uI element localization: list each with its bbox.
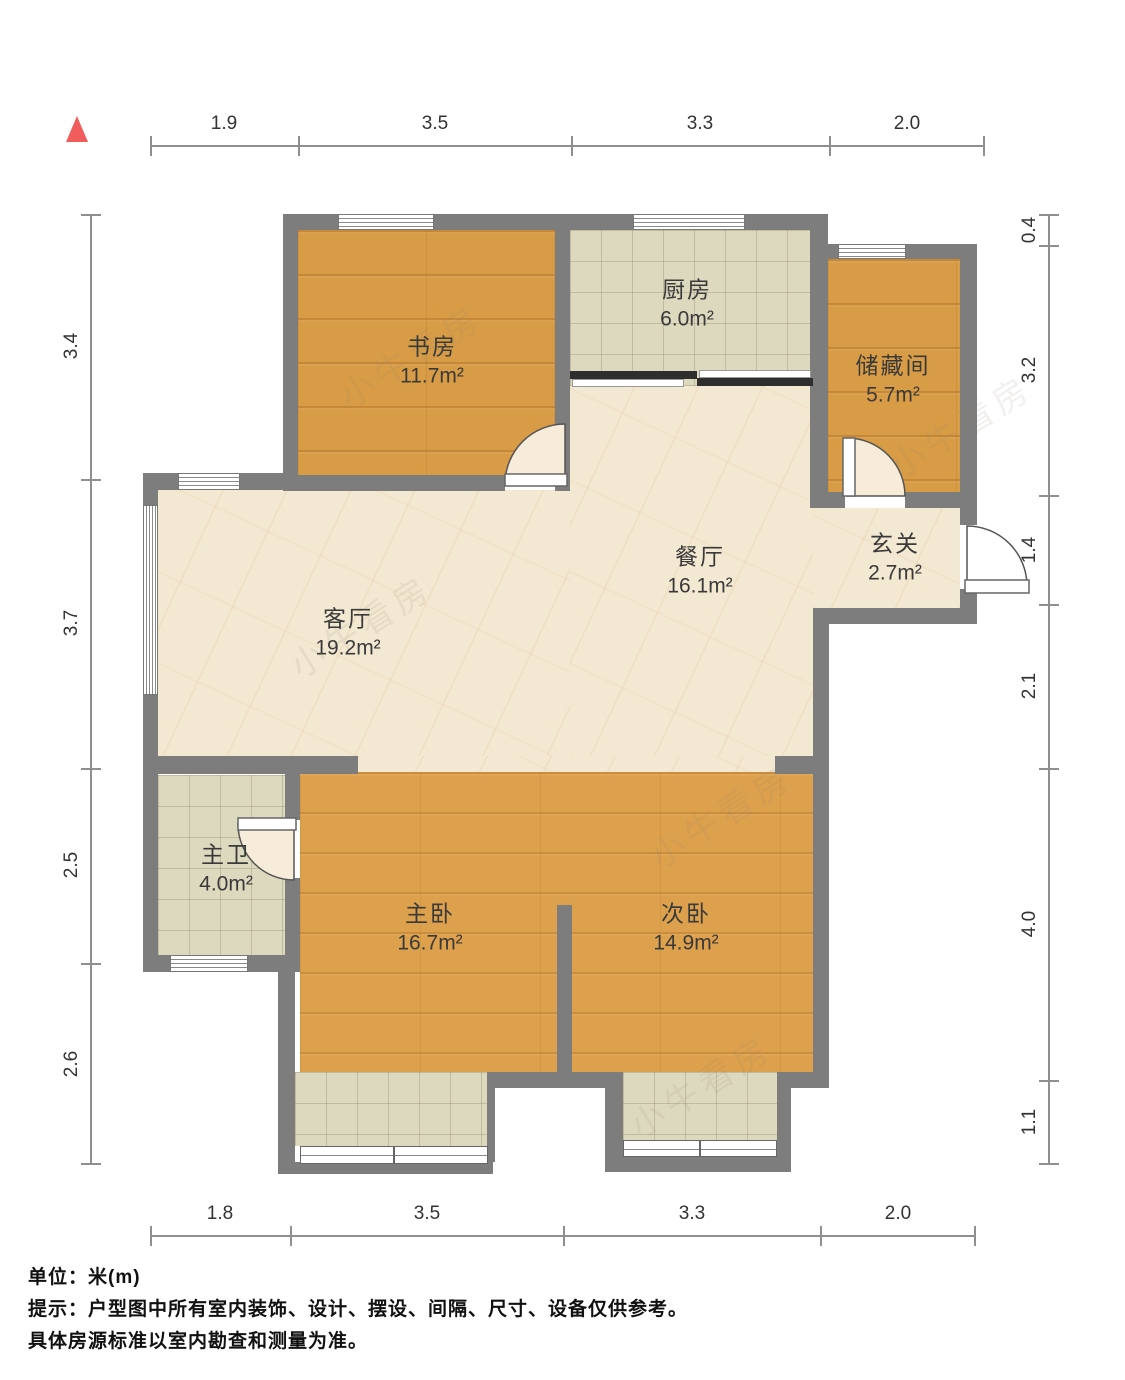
disclaimer-line1: 提示：户型图中所有室内装饰、设计、摆设、间隔、尺寸、设备仅供参考。 — [28, 1294, 688, 1321]
room-label-second-bed: 次卧 14.9m² — [653, 895, 718, 956]
wall — [775, 756, 829, 774]
entry-door-arc — [967, 526, 1027, 586]
dim-label: 2.6 — [61, 1051, 83, 1077]
wall — [285, 756, 300, 820]
dim-label: 1.8 — [207, 1203, 233, 1225]
bathroom-window — [170, 955, 248, 972]
disclaimer-line2: 具体房源标准以室内勘查和测量为准。 — [28, 1326, 368, 1353]
dim-tick — [820, 1226, 822, 1246]
dim-label: 3.3 — [687, 113, 713, 135]
room-area: 4.0m² — [199, 873, 253, 897]
kitchen-sliding-door — [697, 378, 813, 386]
room-area: 2.7m² — [868, 562, 922, 586]
room-area: 16.7m² — [397, 932, 462, 956]
dim-line-right — [1048, 214, 1050, 1165]
dim-tick — [81, 1163, 101, 1165]
room-label-kitchen: 厨房 6.0m² — [660, 271, 714, 332]
dim-tick — [290, 1226, 292, 1246]
dim-label: 4.0 — [1019, 911, 1041, 937]
dim-label: 1.4 — [1019, 537, 1041, 563]
second-bay-window — [623, 1140, 777, 1157]
dim-tick — [974, 1226, 976, 1246]
wall — [283, 475, 505, 491]
dim-tick — [81, 963, 101, 965]
dim-line-left — [90, 214, 92, 1165]
wall — [555, 214, 570, 491]
dim-tick — [1039, 214, 1059, 216]
dim-label: 3.5 — [414, 1203, 440, 1225]
dim-label: 3.7 — [61, 610, 83, 636]
dim-label: 2.1 — [1019, 673, 1041, 699]
dim-label: 2.0 — [894, 113, 920, 135]
unit-note: 单位：米(m) — [28, 1262, 141, 1289]
room-name: 主卫 — [199, 836, 253, 870]
storage-window — [838, 244, 906, 259]
dim-tick — [1039, 495, 1059, 497]
dim-tick — [1039, 604, 1059, 606]
room-label-master-bed: 主卧 16.7m² — [397, 895, 462, 956]
wall — [777, 1072, 791, 1171]
kitchen-window — [633, 214, 745, 230]
dim-tick — [1039, 1163, 1059, 1165]
kitchen-sliding-door-track — [572, 379, 684, 387]
room-area: 5.7m² — [856, 384, 931, 408]
dim-label: 2.5 — [61, 852, 83, 878]
second-bay-floor — [623, 1072, 777, 1140]
wall — [813, 608, 829, 1075]
room-name: 次卧 — [653, 895, 718, 929]
master-bay-window — [300, 1146, 488, 1164]
living-side-window — [143, 505, 158, 695]
wall — [143, 756, 358, 774]
dim-label: 3.2 — [1019, 357, 1041, 383]
room-name: 客厅 — [315, 600, 380, 634]
dim-tick — [829, 136, 831, 156]
dim-label: 1.9 — [211, 113, 237, 135]
dim-tick — [563, 1226, 565, 1246]
room-area: 11.7m² — [400, 365, 464, 389]
dim-tick — [81, 768, 101, 770]
dim-tick — [298, 136, 300, 156]
living-top-window — [178, 473, 240, 490]
wall — [828, 492, 845, 508]
wall — [565, 475, 570, 491]
dim-tick — [571, 136, 573, 156]
wall — [557, 905, 572, 1072]
dim-label: 1.1 — [1019, 1109, 1041, 1135]
north-arrow-icon — [66, 116, 88, 142]
room-label-entry: 玄关 2.7m² — [868, 525, 922, 586]
room-name: 主卧 — [397, 895, 462, 929]
dim-tick — [1039, 1080, 1059, 1082]
dim-tick — [81, 479, 101, 481]
room-name: 书房 — [400, 328, 464, 362]
room-label-storage: 储藏间 5.7m² — [856, 347, 931, 408]
master-bay-floor — [295, 1072, 487, 1146]
room-label-dining: 餐厅 16.1m² — [667, 538, 732, 599]
wall — [487, 1072, 607, 1088]
room-area: 19.2m² — [315, 637, 380, 661]
room-name: 玄关 — [868, 525, 922, 559]
dim-label: 3.4 — [61, 333, 83, 359]
room-name: 餐厅 — [667, 538, 732, 572]
room-label-study: 书房 11.7m² — [400, 328, 464, 389]
dim-tick — [1039, 768, 1059, 770]
wall — [283, 214, 298, 490]
dim-label: 0.4 — [1019, 217, 1041, 243]
room-label-master-bath: 主卫 4.0m² — [199, 836, 253, 897]
dim-label: 2.0 — [885, 1203, 911, 1225]
kitchen-sliding-door-track — [699, 370, 811, 378]
dim-label: 3.3 — [679, 1203, 705, 1225]
wall — [605, 1155, 791, 1172]
dim-tick — [150, 136, 152, 156]
floorplan-canvas: 小牛看房 小牛看房 小牛看房 小牛看房 小牛看房 书房 11.7m² 厨房 6.… — [0, 0, 1125, 1380]
dim-tick — [81, 214, 101, 216]
room-label-living: 客厅 19.2m² — [315, 600, 380, 661]
kitchen-sliding-door — [570, 371, 697, 379]
dim-tick — [1039, 245, 1059, 247]
wall — [905, 492, 977, 508]
room-name: 储藏间 — [856, 347, 931, 381]
dim-label: 3.5 — [422, 113, 448, 135]
wall — [278, 955, 295, 1174]
wall — [813, 608, 977, 624]
study-window — [338, 214, 434, 230]
dim-tick — [150, 1226, 152, 1246]
dim-line-top — [150, 145, 985, 147]
wall — [810, 214, 828, 508]
room-area: 14.9m² — [653, 932, 718, 956]
room-name: 厨房 — [660, 271, 714, 305]
dim-tick — [983, 136, 985, 156]
wall — [960, 244, 977, 525]
room-area: 6.0m² — [660, 308, 714, 332]
room-area: 16.1m² — [667, 575, 732, 599]
